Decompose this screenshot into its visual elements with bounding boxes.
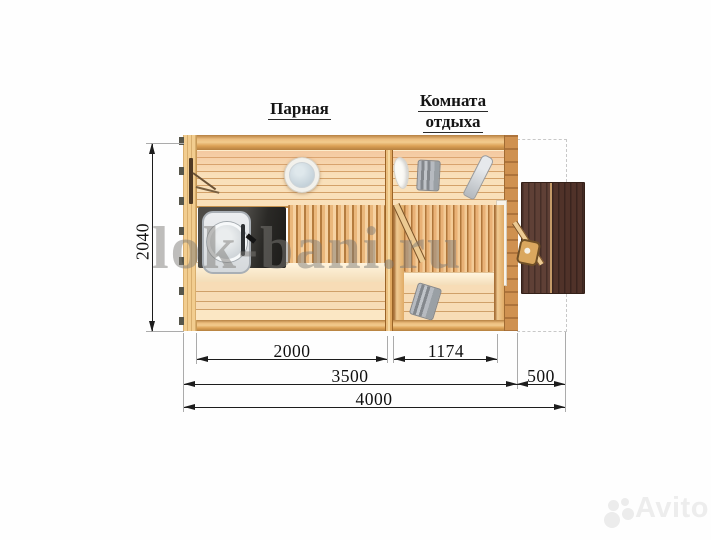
arrow-left-icon [184,381,195,387]
steam-room-label: Парная [252,99,347,120]
dimension-steam-width-value: 2000 [242,341,342,362]
extension-line [497,334,498,363]
rest-room-label-line2: отдыха [423,112,482,133]
dimension-total-width-value: 4000 [324,389,424,410]
extension-line [565,332,566,412]
avito-logo-dot [604,512,620,528]
rest-room-label-line1: Комната [418,91,488,112]
dimension-terrace-depth-value: 500 [517,366,565,387]
steam-lower-bench [196,282,385,320]
dimension-main-width-value: 3500 [300,366,400,387]
bench-post [494,205,504,320]
entry-door-leaf [189,158,193,204]
extension-line [183,333,184,412]
wall-brush [416,159,441,191]
sauna-floor-plan: Парная Комната отдыха 2040 [0,0,711,540]
avito-watermark-text: Avito [635,492,709,525]
wall-bottom [183,320,517,331]
rest-room-label: Комната отдыха [405,91,501,133]
bench-plank [196,309,385,320]
avito-logo-dot [621,498,629,506]
arrow-right-icon [554,404,565,410]
arrow-up-icon [149,143,155,154]
avito-logo-dot [622,508,634,520]
arrow-left-icon [184,404,195,410]
round-window [284,157,320,193]
steam-room-label-text: Парная [268,99,331,120]
window-glass [289,162,315,188]
handle-hole [524,247,531,254]
extension-line [387,336,388,363]
arrow-right-icon [506,381,517,387]
dimension-rest-width-value: 1174 [395,341,497,362]
arrow-left-icon [197,356,208,362]
terrace-table [521,182,585,294]
avito-watermark: Avito [602,492,708,534]
wall-top [183,135,517,150]
dimension-height-value: 2040 [133,216,154,268]
arrow-down-icon [149,321,155,332]
avito-logo-dot [608,500,619,511]
arrow-right-icon [376,356,387,362]
site-watermark: lok-bani.ru [152,214,462,283]
